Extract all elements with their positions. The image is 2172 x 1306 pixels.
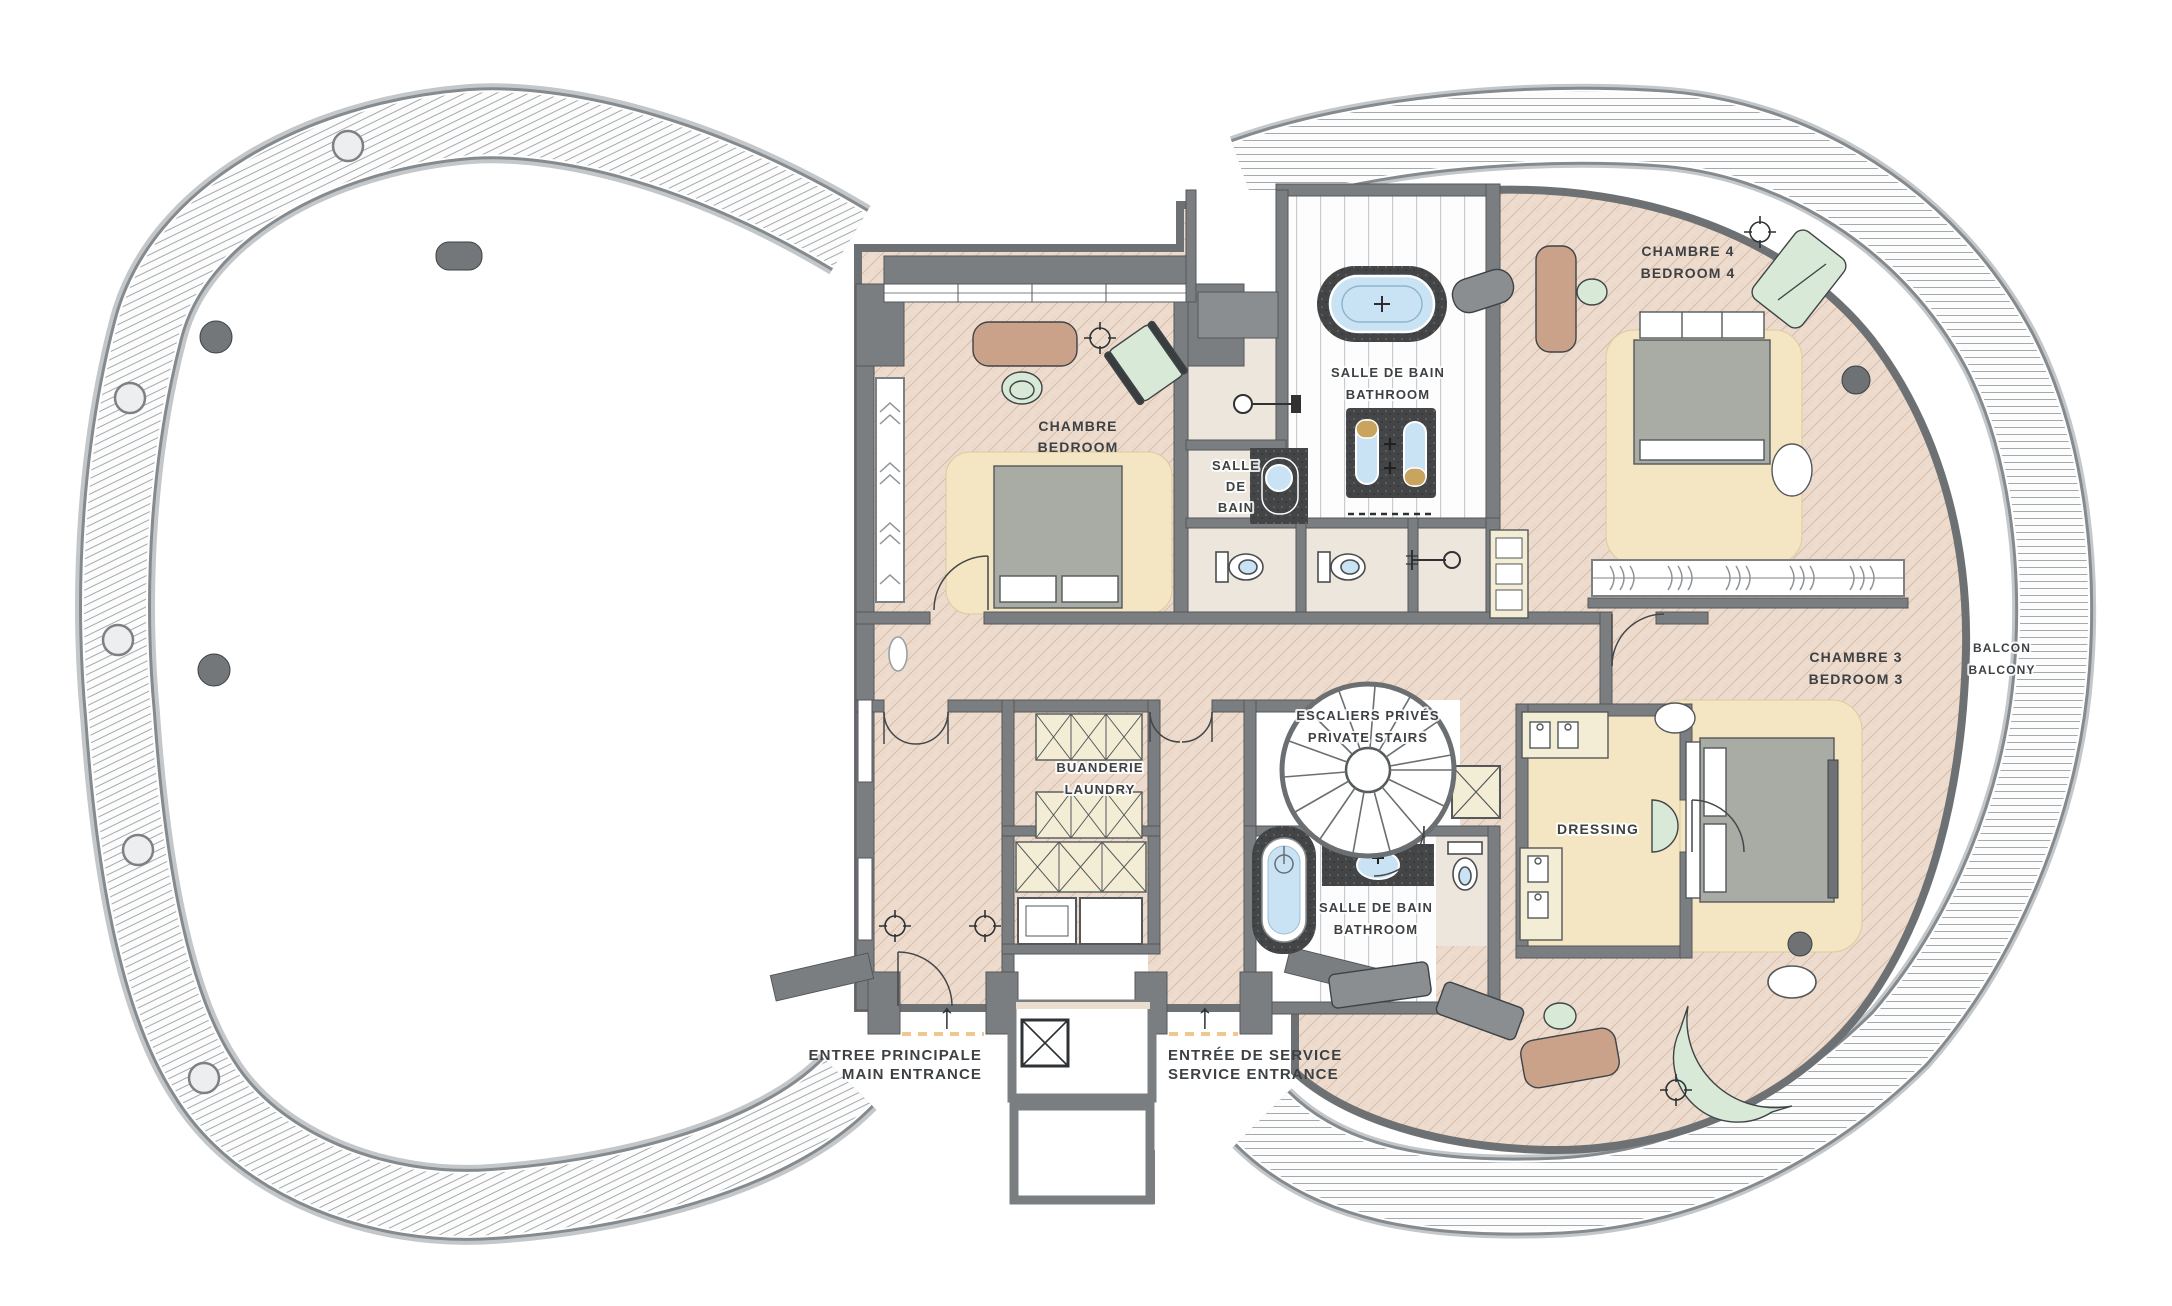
column xyxy=(189,1063,219,1093)
shaft-lower xyxy=(1014,1106,1150,1200)
column xyxy=(333,131,363,161)
hanger-icon xyxy=(1530,722,1550,748)
room-label-bathroom-small-1: SALLE xyxy=(1212,458,1260,473)
entrance-label-service-en: SERVICE ENTRANCE xyxy=(1168,1066,1339,1083)
room-label-stairs-en: PRIVATE STAIRS xyxy=(1308,730,1428,745)
room-label-bathroom-bottom-en: BATHROOM xyxy=(1334,922,1418,937)
elevator-shaft xyxy=(1022,1020,1068,1066)
terrace xyxy=(103,123,850,1205)
toilet xyxy=(1318,552,1365,582)
room-label-laundry-en: LAUNDRY xyxy=(1065,782,1136,797)
room-label-bedroom3-en: BEDROOM 3 xyxy=(1809,671,1904,687)
room-label-bedroom-fr: CHAMBRE xyxy=(1038,418,1117,434)
room-label-laundry-fr: BUANDERIE xyxy=(1056,760,1143,775)
toilet xyxy=(1216,552,1263,582)
washer xyxy=(1080,898,1142,944)
entrance-label-service-fr: ENTRÉE DE SERVICE xyxy=(1168,1047,1342,1064)
room-label-balcony-fr: BALCON xyxy=(1973,641,2031,655)
floor-plan-drawing: CHAMBRE BEDROOM SALLE DE BAIN SALLE DE B… xyxy=(0,0,2172,1306)
room-label-bathroom-small-3: BAIN xyxy=(1218,500,1254,515)
room-label-stairs-fr: ESCALIERS PRIVÉS xyxy=(1296,708,1439,723)
vestibule-floor xyxy=(1014,954,1148,1004)
terrace-window xyxy=(858,700,872,782)
room-label-bathroom-top-en: BATHROOM xyxy=(1346,387,1430,402)
room-label-bathroom-bottom-fr: SALLE DE BAIN xyxy=(1319,900,1433,915)
pouf xyxy=(1655,703,1695,733)
room-label-bathroom-small-2: DE xyxy=(1226,479,1246,494)
desk xyxy=(973,322,1077,366)
room-label-balcony-en: BALCONY xyxy=(1968,663,2035,677)
desk-chair xyxy=(1544,1003,1576,1029)
oval-rug xyxy=(1768,966,1816,998)
planter xyxy=(198,654,230,686)
side-table xyxy=(1788,932,1812,956)
desk xyxy=(1536,246,1576,352)
desk-chair xyxy=(1577,279,1607,305)
room-label-dressing: DRESSING xyxy=(1557,821,1639,837)
room-label-bedroom3-fr: CHAMBRE 3 xyxy=(1809,649,1902,665)
hanger-icon xyxy=(1528,892,1548,918)
side-table xyxy=(1842,366,1870,394)
bench-slim xyxy=(1828,760,1838,898)
room-label-bedroom4-en: BEDROOM 4 xyxy=(1641,265,1736,281)
entrance-label-main-fr: ENTREE PRINCIPALE xyxy=(809,1047,982,1064)
hanger-icon xyxy=(1528,856,1548,882)
entrance-label-main-en: MAIN ENTRANCE xyxy=(842,1066,982,1083)
pouf xyxy=(1772,444,1812,496)
column xyxy=(103,625,133,655)
planter xyxy=(436,242,482,270)
floor-plan-canvas: CHAMBRE BEDROOM SALLE DE BAIN SALLE DE B… xyxy=(0,0,2172,1306)
wall-stub xyxy=(1146,1150,1155,1204)
room-label-bedroom-en: BEDROOM xyxy=(1038,439,1119,455)
planter xyxy=(200,321,232,353)
column xyxy=(123,835,153,865)
vase xyxy=(889,637,907,671)
column xyxy=(115,383,145,413)
hanger-icon xyxy=(1558,722,1578,748)
threshold-strip xyxy=(1016,1002,1150,1009)
room-label-bedroom4-fr: CHAMBRE 4 xyxy=(1641,243,1734,259)
main-entrance-arrow-icon: ↑ xyxy=(938,995,956,1036)
terrace-window xyxy=(858,858,872,940)
room-label-bathroom-top-fr: SALLE DE BAIN xyxy=(1331,365,1445,380)
service-entrance-arrow-icon: ↑ xyxy=(1196,995,1214,1036)
terrace-floor xyxy=(147,157,846,1173)
